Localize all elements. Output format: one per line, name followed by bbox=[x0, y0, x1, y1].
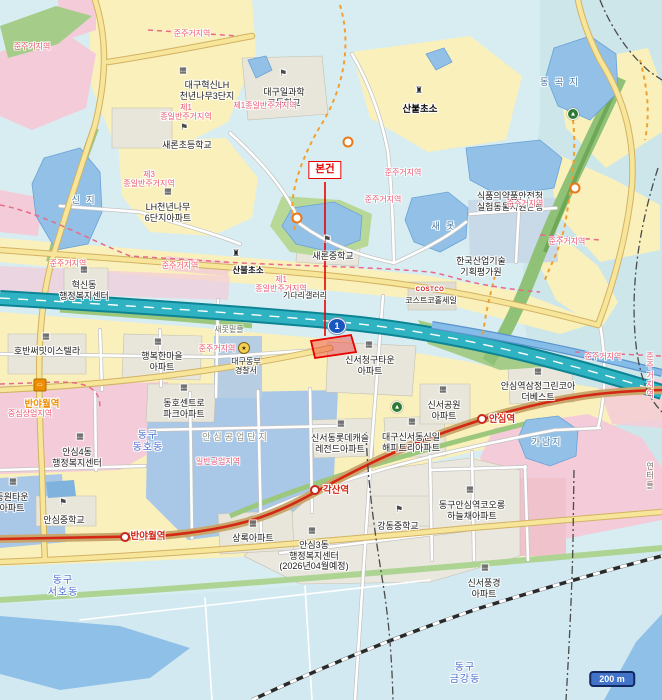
green-icon: ▲ bbox=[567, 108, 579, 120]
ring-icon bbox=[343, 137, 354, 148]
police-icon: ★ bbox=[238, 342, 250, 354]
building-icon: ▦ bbox=[154, 337, 162, 346]
ring-icon bbox=[292, 213, 303, 224]
tower-icon: ♜ bbox=[415, 86, 423, 96]
map-viewport[interactable]: 대구혁신LH 천년나무3단지대구일과학 고등학교새론초등학교LH천년나무 6단지… bbox=[0, 0, 662, 700]
building-icon: ▦ bbox=[76, 432, 84, 441]
ring-icon bbox=[570, 183, 581, 194]
school-icon: ⚑ bbox=[279, 69, 287, 79]
school-icon: ⚑ bbox=[395, 505, 403, 515]
building-icon: ▦ bbox=[534, 367, 542, 376]
building-icon: ▦ bbox=[179, 66, 187, 75]
building-icon: ▦ bbox=[308, 526, 316, 535]
building-icon: ▦ bbox=[42, 332, 50, 341]
map-scale-bar: 200 m bbox=[589, 671, 635, 687]
tower-icon: ♜ bbox=[232, 249, 240, 259]
green-icon: ▲ bbox=[391, 401, 403, 413]
subject-property-label: 본건 bbox=[308, 161, 341, 179]
station-icon bbox=[310, 485, 320, 495]
school-icon: ⚑ bbox=[59, 498, 67, 508]
building-icon: ▦ bbox=[164, 187, 172, 196]
building-icon: ▦ bbox=[9, 477, 17, 486]
building-icon: ▦ bbox=[365, 340, 373, 349]
building-icon: ▦ bbox=[249, 519, 257, 528]
bus-icon: ▭ bbox=[34, 379, 47, 392]
building-icon: ▦ bbox=[408, 417, 416, 426]
station-icon bbox=[477, 414, 487, 424]
building-icon: ▦ bbox=[337, 419, 345, 428]
school-icon: ⚑ bbox=[180, 123, 188, 133]
station-icon bbox=[120, 532, 130, 542]
building-icon: ▦ bbox=[180, 383, 188, 392]
map-markers-layer: ▦▦▦▦▦▦▦▦▦▦▦▦▦▦▦▦▦⚑⚑⚑⚑⚑♜♜▲▲▭★ bbox=[0, 0, 662, 700]
building-icon: ▦ bbox=[481, 563, 489, 572]
building-icon: ▦ bbox=[80, 265, 88, 274]
school-icon: ⚑ bbox=[323, 235, 331, 245]
building-icon: ▦ bbox=[439, 385, 447, 394]
building-icon: ▦ bbox=[466, 485, 474, 494]
